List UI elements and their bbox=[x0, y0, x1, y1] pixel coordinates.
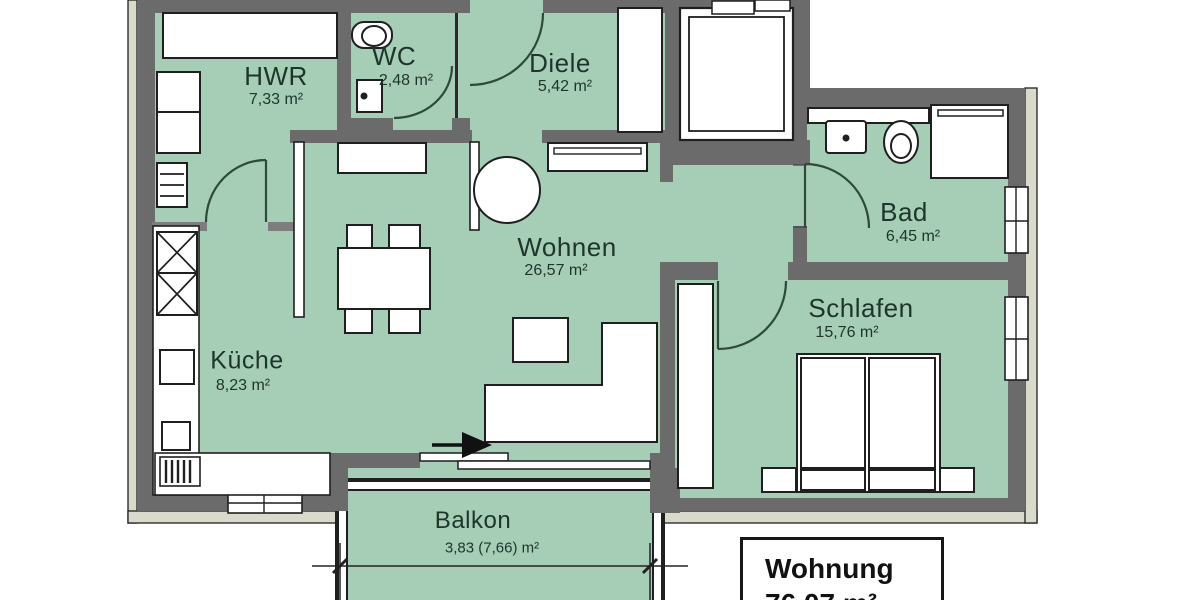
chair bbox=[389, 309, 420, 333]
window-schlafen bbox=[1005, 297, 1028, 380]
chair bbox=[389, 225, 420, 248]
room-label-hwr: HWR bbox=[244, 63, 308, 89]
room-area-schlafen: 15,76 m² bbox=[815, 325, 878, 341]
room-label-wc: WC bbox=[372, 43, 416, 69]
washer bbox=[157, 72, 200, 112]
kitchen-sink-icon bbox=[160, 350, 194, 384]
unit-summary-area: 76,07 m² bbox=[765, 586, 941, 600]
room-area-hwr: 7,33 m² bbox=[249, 92, 303, 108]
room-area-bad: 6,45 m² bbox=[886, 229, 940, 245]
floor-plan: HWR 7,33 m² WC 2,48 m² Diele 5,42 m² Bad… bbox=[0, 0, 1200, 600]
coffee-table bbox=[513, 318, 568, 362]
round-table bbox=[474, 157, 540, 223]
window-bad bbox=[1005, 187, 1028, 253]
hwr-radiator-icon bbox=[157, 163, 187, 207]
room-area-wohnen: 26,57 m² bbox=[524, 263, 587, 279]
shaft-door-notch bbox=[712, 1, 754, 14]
room-area-kueche: 8,23 m² bbox=[216, 378, 270, 394]
outside-area bbox=[808, 0, 1040, 88]
shower bbox=[931, 105, 1008, 178]
nightstand-right bbox=[940, 468, 974, 492]
chair bbox=[345, 309, 372, 333]
room-area-diele: 5,42 m² bbox=[538, 79, 592, 95]
sink-icon-bad bbox=[826, 121, 866, 153]
room-label-wohnen: Wohnen bbox=[517, 234, 616, 260]
room-area-wc: 2,48 m² bbox=[379, 73, 433, 89]
kueche-radiator-icon bbox=[160, 457, 200, 486]
room-label-schlafen: Schlafen bbox=[808, 295, 913, 321]
room-label-kueche: Küche bbox=[210, 349, 283, 374]
dining-table bbox=[338, 248, 430, 309]
room-label-diele: Diele bbox=[529, 50, 591, 76]
sideboard bbox=[338, 143, 426, 173]
unit-summary-label: Wohnung bbox=[765, 551, 941, 586]
room-label-bad: Bad bbox=[880, 199, 928, 225]
lowboard bbox=[548, 143, 647, 171]
elevator-shaft bbox=[680, 0, 793, 140]
kitchen-appliance bbox=[162, 422, 190, 450]
nightstand-left bbox=[762, 468, 796, 492]
room-area-balkon: 3,83 (7,66) m² bbox=[445, 541, 539, 556]
chair bbox=[347, 225, 372, 248]
diele-wardrobe bbox=[618, 8, 662, 132]
shaft-door-notch bbox=[755, 0, 790, 11]
unit-summary-box: Wohnung 76,07 m² bbox=[740, 537, 944, 600]
hwr-counter bbox=[163, 13, 337, 58]
room-label-balkon: Balkon bbox=[435, 509, 511, 533]
schlafen-wardrobe bbox=[678, 284, 713, 488]
bad-counter bbox=[808, 108, 929, 123]
toilet-icon-bad bbox=[884, 121, 918, 163]
window-kueche bbox=[228, 493, 302, 513]
floor-plan-drawing bbox=[0, 0, 1200, 600]
dryer bbox=[157, 112, 200, 153]
stove-icon bbox=[157, 232, 197, 315]
